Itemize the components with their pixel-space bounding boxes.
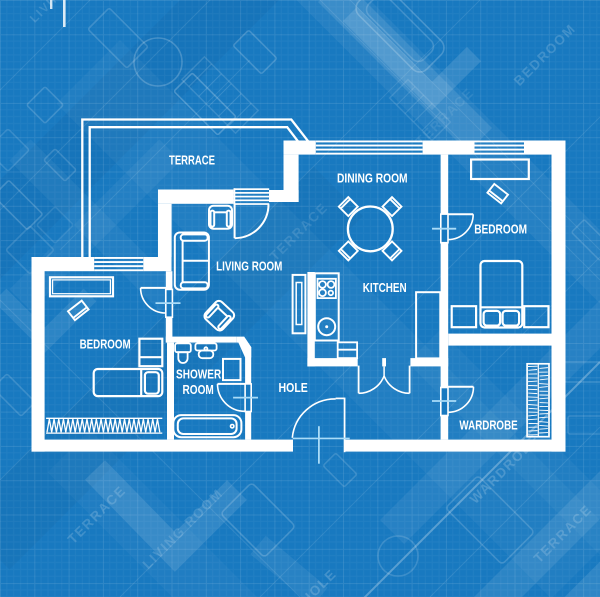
svg-text:LIVING ROOM: LIVING ROOM xyxy=(216,259,282,274)
svg-text:TERRACE: TERRACE xyxy=(169,153,215,168)
svg-text:BEDROOM: BEDROOM xyxy=(80,337,131,352)
svg-text:WARDROBE: WARDROBE xyxy=(459,418,518,433)
svg-text:BEDROOM: BEDROOM xyxy=(474,222,527,237)
svg-text:HOLE: HOLE xyxy=(279,380,309,395)
svg-text:DINING ROOM: DINING ROOM xyxy=(337,171,408,186)
svg-text:ROOM: ROOM xyxy=(183,382,214,397)
svg-text:SHOWER: SHOWER xyxy=(176,366,221,381)
svg-text:KITCHEN: KITCHEN xyxy=(363,280,407,295)
